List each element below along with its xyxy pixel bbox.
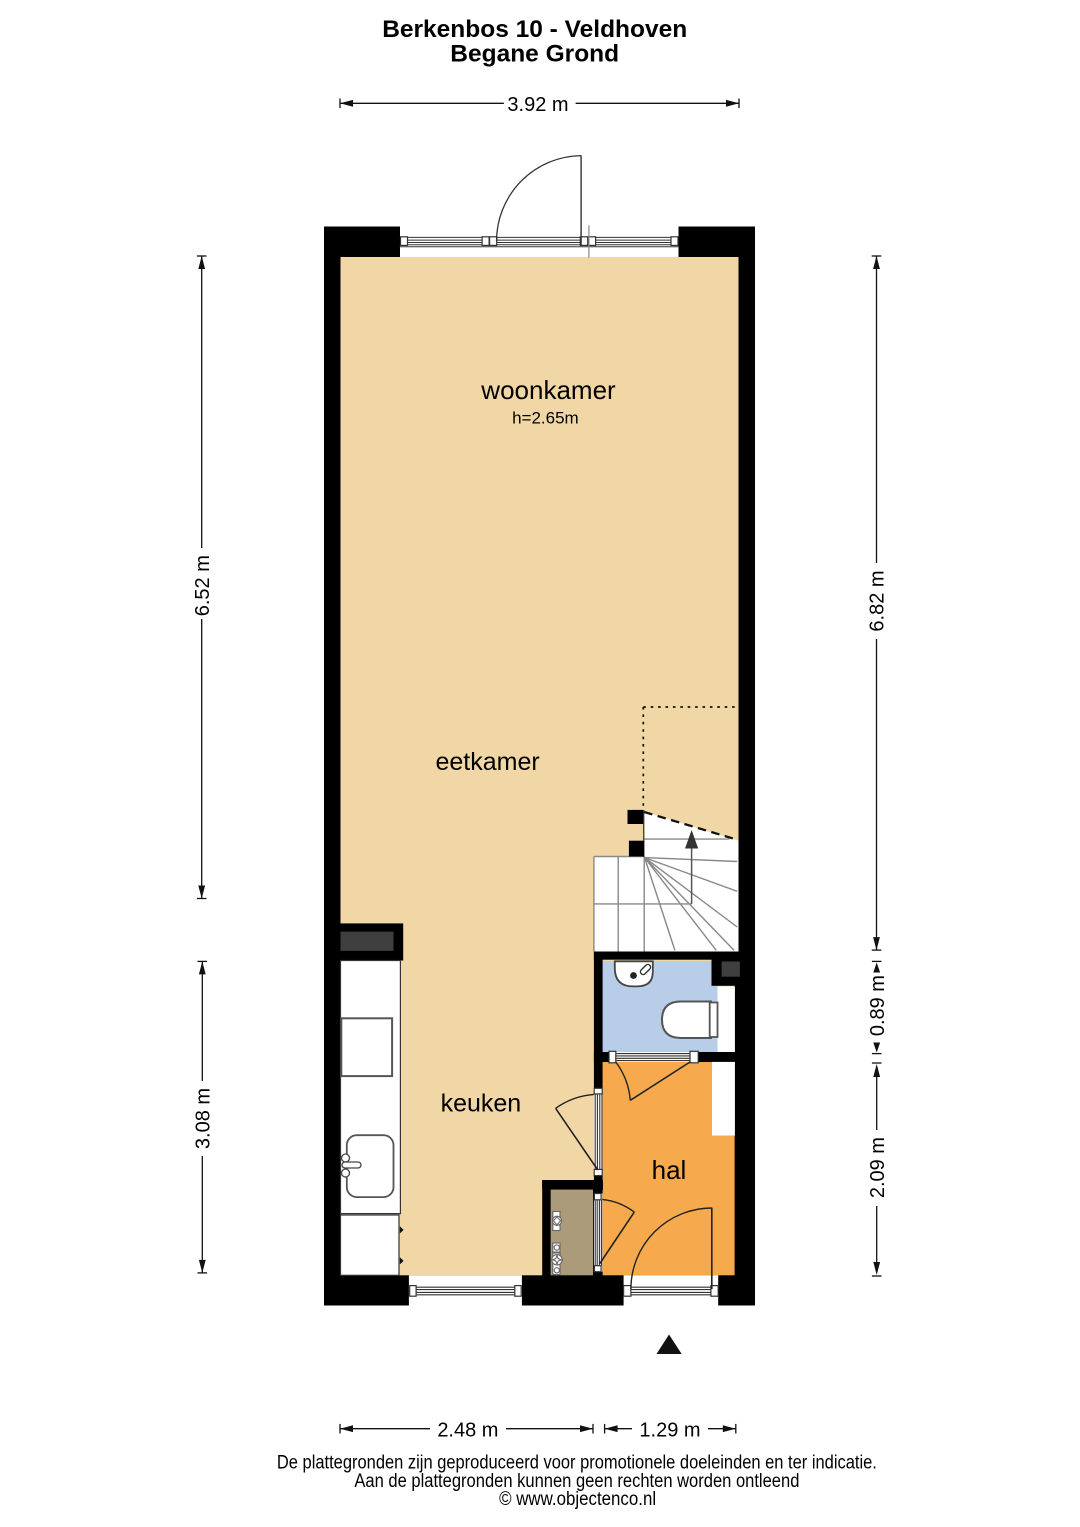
svg-text:6.52 m: 6.52 m (192, 555, 214, 616)
svg-text:3.08 m: 3.08 m (193, 1088, 215, 1149)
svg-text:6.82 m: 6.82 m (867, 570, 889, 631)
svg-text:woonkamer: woonkamer (480, 375, 616, 405)
svg-text:h=2.65m: h=2.65m (512, 408, 579, 427)
svg-text:Begane Grond: Begane Grond (450, 41, 619, 68)
svg-text:keuken: keuken (441, 1090, 522, 1118)
svg-text:2.09 m: 2.09 m (867, 1137, 889, 1198)
svg-text:Berkenbos 10 - Veldhoven: Berkenbos 10 - Veldhoven (382, 16, 687, 43)
svg-text:© www.objectenco.nl: © www.objectenco.nl (499, 1489, 656, 1510)
svg-text:2.48 m: 2.48 m (437, 1419, 498, 1441)
svg-text:hal: hal (652, 1155, 687, 1185)
svg-text:0.89 m: 0.89 m (867, 975, 889, 1036)
svg-text:3.92 m: 3.92 m (507, 94, 568, 116)
svg-text:eetkamer: eetkamer (435, 748, 539, 776)
svg-text:1.29 m: 1.29 m (639, 1419, 700, 1441)
